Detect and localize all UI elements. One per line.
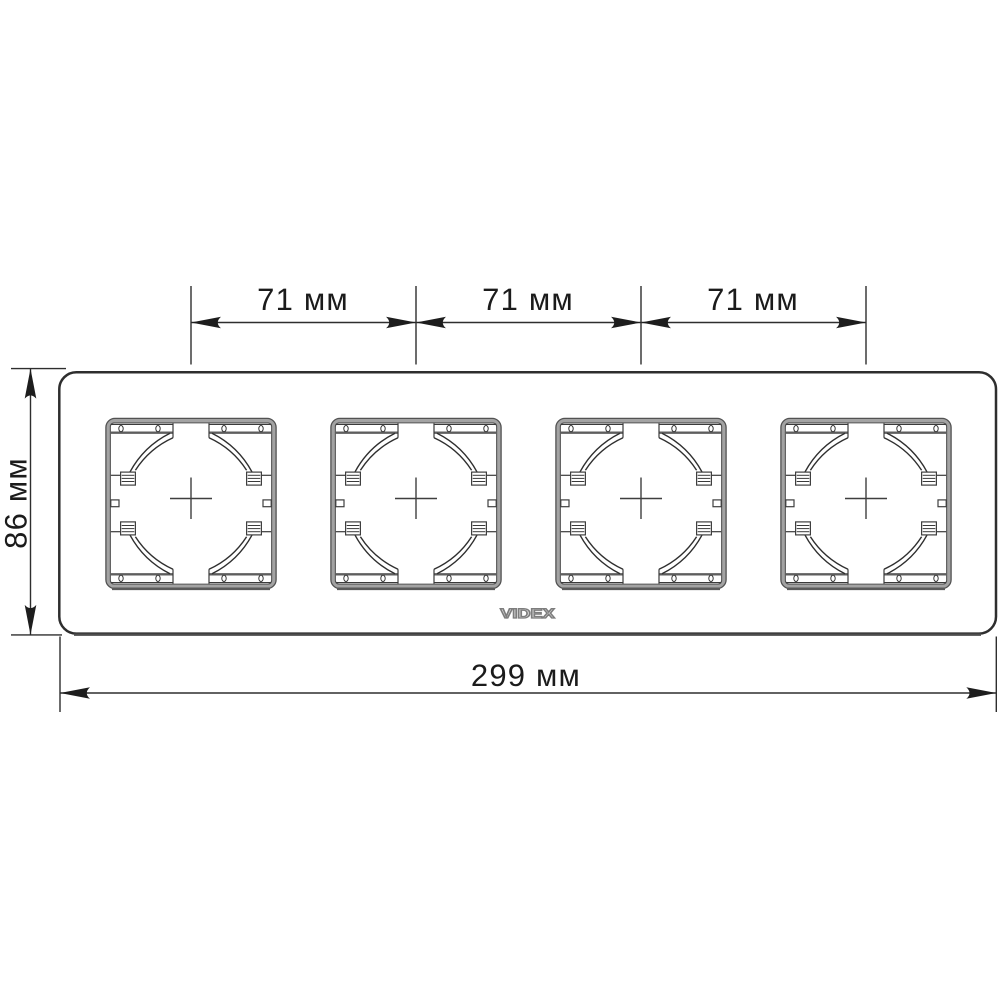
svg-text:86 мм: 86 мм (0, 457, 34, 549)
svg-text:71 мм: 71 мм (257, 282, 349, 317)
svg-text:VIDEX: VIDEX (500, 606, 555, 621)
svg-text:71 мм: 71 мм (482, 282, 574, 317)
svg-text:71 мм: 71 мм (707, 282, 799, 317)
svg-text:299 мм: 299 мм (471, 658, 581, 693)
